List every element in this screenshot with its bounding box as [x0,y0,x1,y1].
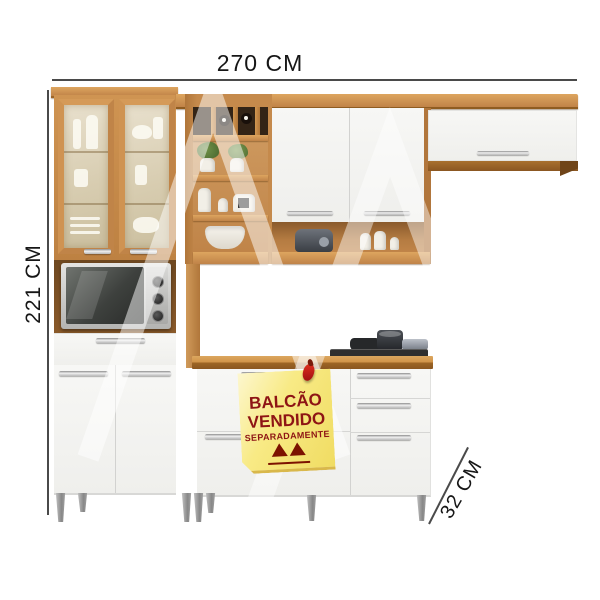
base-drawer-handle-2 [357,403,411,408]
product-image: BALCÃO VENDIDO SEPARADAMENTE 270 CM 221 … [0,0,600,600]
plant-leaves [197,142,219,159]
decor-plate-stack [70,231,100,234]
microwave-door-reflection [66,271,108,319]
decor-radio-dial [319,237,329,247]
decor-teapot [132,125,152,139]
wine-bottle [219,115,230,126]
decor-plate-stack [70,224,100,227]
shelf-board [193,215,268,221]
glass-door-right-handle [130,249,157,254]
base-drawer-handle-3 [357,435,411,440]
decor-frame-screen [238,198,249,208]
shelf-board [193,175,268,181]
glass-door-left-handle [84,249,111,254]
decor-jar [374,231,386,250]
top-cabinet-corner-wedge [560,161,578,176]
wall-cabinet-doors [272,108,424,223]
decor-jar [360,233,371,250]
cabinet-leg [77,493,88,512]
door-gap [115,365,116,493]
height-dimension-label: 221 CM [22,238,46,330]
cabinet-leg [205,493,216,513]
top-cabinet-handle [477,151,529,155]
microwave-door [66,267,144,324]
decor-plate-stack [70,217,100,220]
tall-cabinet-door-left-handle [59,371,108,376]
door-gap [349,108,350,222]
decor-candle [218,198,228,212]
cabinet-leg [416,495,427,521]
decor-jar [135,165,147,185]
cabinet-leg [306,495,317,521]
tall-cabinet-door-right-handle [122,371,171,376]
decor-radio [295,229,333,252]
logo-triangle-icon [289,442,306,456]
plant-leaves [228,144,248,159]
tall-cabinet-doors [54,365,176,495]
width-dimension-label: 270 CM [170,50,350,77]
glass-shelf-line [125,151,169,153]
tall-cabinet-drawer-handle [96,338,145,343]
pot-lid-glint [379,331,401,337]
wall-cabinet-left-handle [287,211,333,215]
decor-bowl [133,217,159,233]
sticky-note: BALCÃO VENDIDO SEPARADAMENTE [237,369,335,475]
decor-jug [153,117,163,139]
microwave-knob [152,293,164,305]
height-dimension-line [47,90,49,515]
base-drawer-handle-1 [357,373,411,378]
microwave [61,263,171,329]
glass-shelf-line [64,151,108,153]
open-shelf-unit [185,94,272,264]
glass-door-right [119,99,175,254]
microwave-knob [152,276,164,288]
wine-rack-divider [211,107,216,135]
cooking-pot [377,330,403,350]
logo-triangle-icon [271,443,288,457]
support-column [186,264,200,368]
glass-shelf-line [125,203,169,205]
decor-cup [74,169,88,187]
cabinet-leg [55,493,66,522]
microwave-control-panel [146,267,168,324]
wine-rack-divider [255,107,260,135]
glass-shelf-line [64,203,108,205]
decor-frame [233,194,255,212]
base-drawer-line [350,398,430,399]
decor-canister [198,188,211,212]
decor-carafe [86,115,98,149]
plant-pot [200,158,215,172]
plant-pot [230,158,244,172]
microwave-knob [152,310,164,322]
decor-jar [390,237,399,250]
glass-door-left [58,99,114,254]
base-drawer-line [350,432,430,433]
wine-bottle [241,113,252,124]
shelf-board [193,135,268,141]
wall-cabinet-right-handle [364,211,410,215]
open-niche [272,222,424,252]
cabinet-leg [193,493,204,522]
shelf-bottom-board [193,252,268,264]
brand-logo [241,441,335,467]
wine-rack-divider [233,107,238,135]
wine-rack [193,107,268,135]
top-cabinet-bottom-strip [428,161,578,171]
width-dimension-line [52,79,577,81]
cabinet-leg [181,493,192,522]
logo-underline [268,461,310,465]
niche-bottom-board [272,252,430,264]
decor-bottle [73,119,81,149]
